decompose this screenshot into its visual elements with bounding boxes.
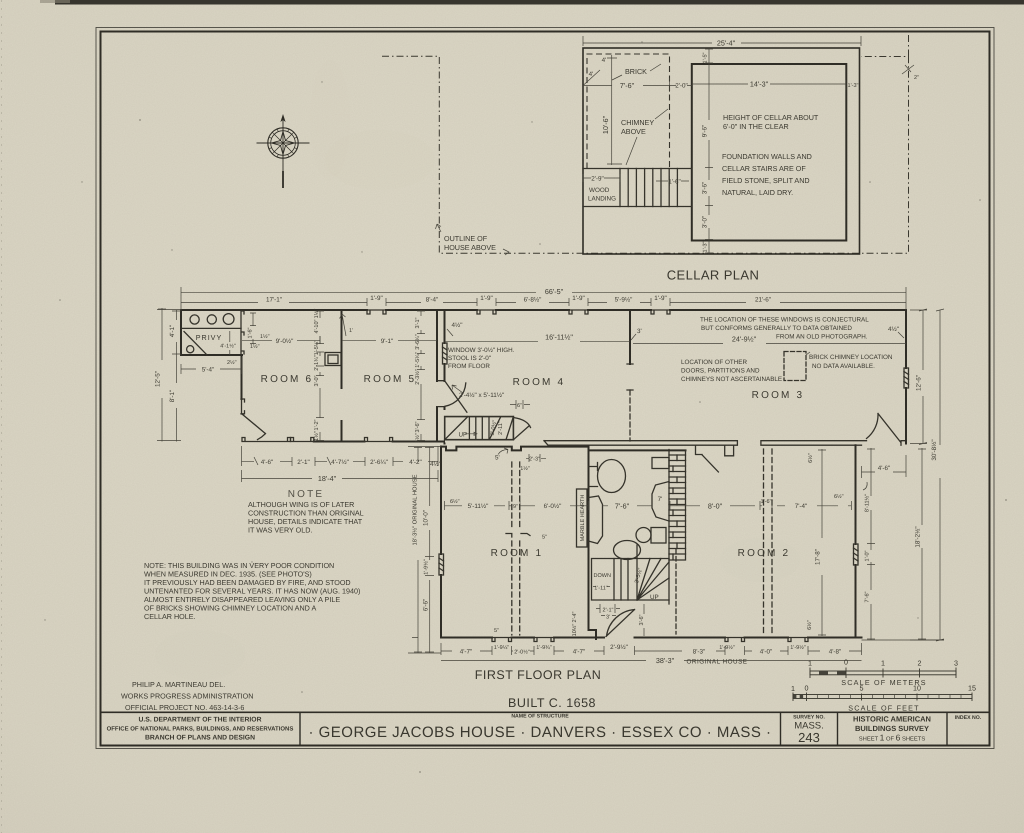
svg-text:7': 7' [658,496,663,503]
svg-text:4'-6": 4'-6" [261,459,274,466]
svg-text:30'-8½": 30'-8½" [931,439,938,460]
svg-text:9": 9" [513,504,518,510]
svg-text:8'-1": 8'-1" [169,390,176,403]
svg-text:HEIGHT OF CELLAR ABOUT: HEIGHT OF CELLAR ABOUT [723,113,819,122]
svg-text:1: 1 [881,659,885,668]
svg-text:3'-6¼": 3'-6¼" [415,334,421,350]
svg-text:1'-9": 1'-9" [572,295,585,302]
svg-text:15: 15 [968,684,976,693]
svg-text:1'-9½": 1'-9½" [719,645,735,651]
svg-text:1: 1 [791,684,795,693]
svg-text:1½": 1½" [260,334,270,340]
svg-text:ROOM 4: ROOM 4 [513,377,566,388]
svg-text:3'-0": 3'-0" [702,216,709,229]
svg-text:1'-9¼": 1'-9¼" [494,645,510,651]
svg-text:U.S. DEPARTMENT OF THE INTERIO: U.S. DEPARTMENT OF THE INTERIOR [139,717,262,724]
svg-text:8'-3": 8'-3" [693,649,706,656]
svg-text:CELLAR PLAN: CELLAR PLAN [667,268,760,283]
svg-text:3'-6": 3'-6" [639,614,645,625]
svg-text:1'-3": 1'-3" [848,83,859,89]
svg-text:· GEORGE JACOBS HOUSE · DANVER: · GEORGE JACOBS HOUSE · DANVERS · ESSEX … [308,724,771,741]
svg-text:8'-0": 8'-0" [708,502,723,511]
svg-text:5': 5' [495,455,500,462]
svg-text:1'-9": 1'-9" [654,295,667,302]
svg-text:INDEX NO.: INDEX NO. [955,715,982,721]
svg-text:2'-1": 2'-1" [297,459,310,466]
svg-text:LOCATION OF OTHER: LOCATION OF OTHER [681,359,747,366]
svg-text:ROOM 1: ROOM 1 [491,548,544,559]
svg-text:1½": 1½" [314,309,320,319]
svg-text:1'-5¼": 1'-5¼" [314,340,320,356]
svg-text:OFFICE OF NATIONAL PARKS, BUIL: OFFICE OF NATIONAL PARKS, BUILDINGS, AND… [107,726,294,733]
svg-text:3'-0": 3'-0" [314,375,320,386]
svg-text:4'-1½": 4'-1½" [220,344,236,350]
svg-text:2'-3": 2'-3" [529,457,540,463]
svg-text:18'-2½": 18'-2½" [915,526,922,547]
svg-text:BUILDINGS SURVEY: BUILDINGS SURVEY [855,724,929,733]
svg-text:ABOVE: ABOVE [621,127,646,136]
svg-text:24'-9½": 24'-9½" [732,335,757,344]
svg-text:0: 0 [844,658,848,667]
svg-text:HOUSE ABOVE: HOUSE ABOVE [444,243,496,252]
svg-text:4': 4' [589,71,594,78]
svg-text:5": 5" [494,628,499,634]
svg-text:2'-4½" x 5'-11½": 2'-4½" x 5'-11½" [459,392,504,399]
svg-text:NATURAL, LAID DRY.: NATURAL, LAID DRY. [722,188,793,197]
svg-text:4': 4' [602,57,607,64]
svg-text:25'-4": 25'-4" [717,39,736,48]
svg-text:1'-11": 1'-11" [594,586,608,592]
svg-text:7'-6": 7'-6" [615,502,630,511]
svg-text:1'-2": 1'-2" [314,419,320,430]
svg-text:PHILIP A. MARTINEAU DEL.: PHILIP A. MARTINEAU DEL. [132,680,225,689]
svg-text:4'-1": 4'-1" [169,325,176,338]
svg-text:3'-1": 3'-1" [415,317,421,328]
svg-text:3'-6": 3'-6" [415,421,421,432]
svg-text:243: 243 [798,730,820,745]
svg-text:1'-9¾": 1'-9¾" [536,645,552,651]
svg-text:3': 3' [606,615,610,621]
svg-text:LANDING: LANDING [588,196,616,203]
svg-text:8'-11½": 8'-11½" [865,494,871,512]
svg-text:ROOM 5: ROOM 5 [364,374,417,385]
svg-text:THE LOCATION OF THESE WINDOWS: THE LOCATION OF THESE WINDOWS IS CONJECT… [700,317,869,324]
svg-text:IT WAS VERY OLD.: IT WAS VERY OLD. [248,526,312,535]
svg-text:4'-7": 4'-7" [573,649,586,656]
svg-text:9'-1": 9'-1" [381,338,394,345]
svg-text:UP: UP [459,432,468,439]
svg-text:4'-8": 4'-8" [829,649,842,656]
svg-text:10'-6": 10'-6" [601,115,610,134]
svg-text:FIELD STONE, SPLIT AND: FIELD STONE, SPLIT AND [722,176,810,185]
svg-text:CHIMNEYS NOT ASCERTAINABLE: CHIMNEYS NOT ASCERTAINABLE [681,376,782,383]
svg-text:ROOM 2: ROOM 2 [738,548,791,559]
svg-text:2'-9½": 2'-9½" [610,644,628,651]
svg-text:4½": 4½" [888,326,899,333]
svg-text:38'-3": 38'-3" [656,656,675,665]
svg-text:SCALE OF FEET: SCALE OF FEET [848,704,920,713]
svg-text:STOOL IS 2'-0": STOOL IS 2'-0" [448,355,491,362]
svg-text:CHIMNEY: CHIMNEY [621,118,654,127]
svg-text:10½": 10½" [572,624,578,637]
svg-text:2: 2 [918,659,922,668]
svg-text:5'-4": 5'-4" [202,367,215,374]
svg-text:0: 0 [805,684,809,693]
svg-text:6": 6" [517,403,522,409]
svg-text:1: 1 [808,659,812,668]
svg-text:DOWN: DOWN [594,573,611,579]
svg-text:NO DATA AVAILABLE.: NO DATA AVAILABLE. [812,363,875,370]
svg-text:1½": 1½" [250,344,260,350]
svg-text:NAME OF STRUCTURE: NAME OF STRUCTURE [511,714,569,720]
svg-text:1'-9": 1'-9" [480,295,493,302]
svg-text:1'-9½": 1'-9½" [790,645,806,651]
svg-text:1'-9½": 1'-9½" [424,559,430,575]
svg-text:6½": 6½" [834,494,844,500]
svg-text:4'-7": 4'-7" [460,649,473,656]
svg-text:3'-6": 3'-6" [702,182,709,195]
svg-text:1'-6": 1'-6" [248,327,254,338]
svg-text:5": 5" [542,535,547,541]
svg-text:14'-3": 14'-3" [750,80,769,89]
svg-text:ORIGINAL HOUSE: ORIGINAL HOUSE [687,659,748,666]
svg-text:12'-5": 12'-5" [155,371,162,387]
svg-text:WINDOW 3'-0½" HIGH.: WINDOW 3'-0½" HIGH. [448,347,515,354]
svg-text:BRANCH OF PLANS AND DESIGN: BRANCH OF PLANS AND DESIGN [145,735,255,742]
svg-text:FOUNDATION WALLS AND: FOUNDATION WALLS AND [722,152,812,161]
svg-text:8'-4": 8'-4" [426,297,439,304]
svg-text:3': 3' [637,328,642,335]
svg-text:1½": 1½" [415,433,421,443]
svg-text:12'-6": 12'-6" [916,375,923,391]
svg-text:4'-7½": 4'-7½" [331,459,349,466]
svg-text:9'-6": 9'-6" [702,125,709,138]
svg-text:17'-8": 17'-8" [815,549,822,565]
svg-text:BUT CONFORMS GENERALLY TO DATA: BUT CONFORMS GENERALLY TO DATA OBTAINED [701,325,852,332]
svg-text:4'-0": 4'-0" [760,649,773,656]
svg-text:5'-11½": 5'-11½" [468,503,489,510]
svg-text:5: 5 [860,684,864,693]
svg-text:4'-10": 4'-10" [314,319,320,333]
svg-text:2'-9": 2'-9" [591,176,604,183]
svg-text:10'-0": 10'-0" [423,510,430,526]
svg-text:21'-6": 21'-6" [755,297,771,304]
svg-text:17'-1": 17'-1" [266,297,282,304]
svg-text:2'-1": 2'-1" [603,608,614,614]
svg-text:4½": 4½" [452,322,463,329]
svg-text:6½": 6½" [450,499,460,505]
svg-text:1'-5": 1'-5" [703,52,709,63]
svg-text:9'-0½": 9'-0½" [276,338,294,345]
svg-text:7'-6": 7'-6" [865,591,871,602]
svg-text:5'-9½": 5'-9½" [615,297,633,304]
svg-text:2'-4": 2'-4" [572,611,578,622]
svg-text:OUTLINE OF: OUTLINE OF [444,234,488,243]
svg-text:FIRST FLOOR PLAN: FIRST FLOOR PLAN [475,668,602,682]
svg-text:4'-2": 4'-2" [409,459,422,466]
svg-text:7'-4": 7'-4" [795,503,808,510]
svg-text:4'-6": 4'-6" [878,465,891,472]
svg-text:6'-0½": 6'-0½" [544,503,562,510]
svg-text:7'-6": 7'-6" [620,81,635,90]
svg-text:1'-3": 1'-3" [703,241,709,252]
svg-text:1'-9": 1'-9" [370,295,383,302]
svg-text:MARBLE HEARTH: MARBLE HEARTH [580,495,586,542]
svg-text:4½": 4½" [430,461,441,468]
svg-text:2": 2" [914,75,919,81]
svg-text:BRICK CHIMNEY LOCATION: BRICK CHIMNEY LOCATION [809,354,893,361]
svg-text:1'-6": 1'-6" [761,499,772,505]
svg-text:2'-6¼": 2'-6¼" [370,459,388,466]
svg-text:UP: UP [650,594,659,601]
svg-text:6½": 6½" [807,620,813,630]
svg-text:NOTE: NOTE [288,489,325,500]
svg-text:OFFICIAL PROJECT NO. 463-14-3-: OFFICIAL PROJECT NO. 463-14-3-6 [125,703,244,712]
svg-text:1½": 1½" [520,466,530,472]
svg-text:6'-8½": 6'-8½" [524,297,542,304]
svg-text:10: 10 [913,684,921,693]
svg-text:1': 1' [349,328,353,334]
svg-text:18'-3½" ORIGINAL HOUSE: 18'-3½" ORIGINAL HOUSE [412,474,419,545]
svg-text:BUILT C. 1658: BUILT C. 1658 [508,696,596,710]
svg-text:66'-5": 66'-5" [545,287,564,296]
svg-text:1'-0": 1'-0" [865,550,871,561]
svg-text:18'-4": 18'-4" [318,474,337,483]
svg-text:FROM FLOOR: FROM FLOOR [448,363,490,370]
svg-text:PRIVY: PRIVY [196,333,223,342]
svg-text:ROOM 6: ROOM 6 [261,374,314,385]
svg-text:1'-5¼": 1'-5¼" [415,352,421,368]
svg-text:2'-1¾": 2'-1¾" [314,355,320,371]
svg-text:HISTORIC AMERICAN: HISTORIC AMERICAN [853,715,931,724]
svg-text:6'-0" IN THE CLEAR: 6'-0" IN THE CLEAR [723,122,789,131]
svg-text:2'-0": 2'-0" [675,83,688,90]
svg-text:FROM AN OLD PHOTOGRAPH.: FROM AN OLD PHOTOGRAPH. [776,334,868,341]
svg-text:1½": 1½" [314,431,320,441]
svg-text:16'-11½": 16'-11½" [545,333,573,342]
svg-text:1'-6": 1'-6" [668,179,681,186]
svg-text:CELLAR HOLE.: CELLAR HOLE. [144,612,196,621]
svg-text:CELLAR STAIRS ARE OF: CELLAR STAIRS ARE OF [722,164,806,173]
svg-text:3: 3 [954,659,958,668]
svg-text:ROOM 3: ROOM 3 [752,390,805,401]
svg-text:2'-11": 2'-11" [498,421,504,435]
svg-text:2'-0½": 2'-0½" [514,650,530,656]
svg-text:WOOD: WOOD [589,187,610,194]
svg-text:6½": 6½" [808,453,814,463]
svg-text:2½": 2½" [227,360,237,366]
svg-text:WORKS PROGRESS ADMINISTRATION: WORKS PROGRESS ADMINISTRATION [121,692,253,701]
svg-text:DOORS, PARTITIONS AND: DOORS, PARTITIONS AND [681,368,760,375]
svg-text:6'-6": 6'-6" [423,599,430,612]
svg-text:BRICK: BRICK [625,67,647,76]
